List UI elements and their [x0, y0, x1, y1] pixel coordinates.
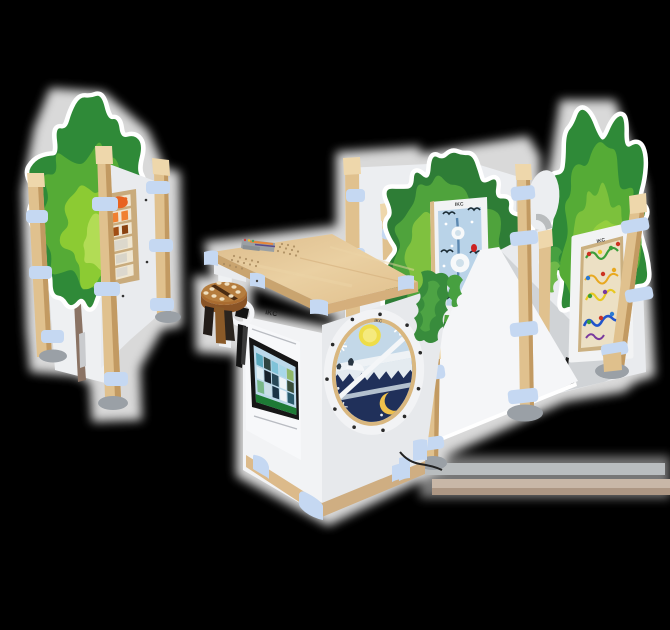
svg-text:IKC: IKC: [455, 202, 464, 208]
svg-text:IKC: IKC: [374, 318, 383, 324]
